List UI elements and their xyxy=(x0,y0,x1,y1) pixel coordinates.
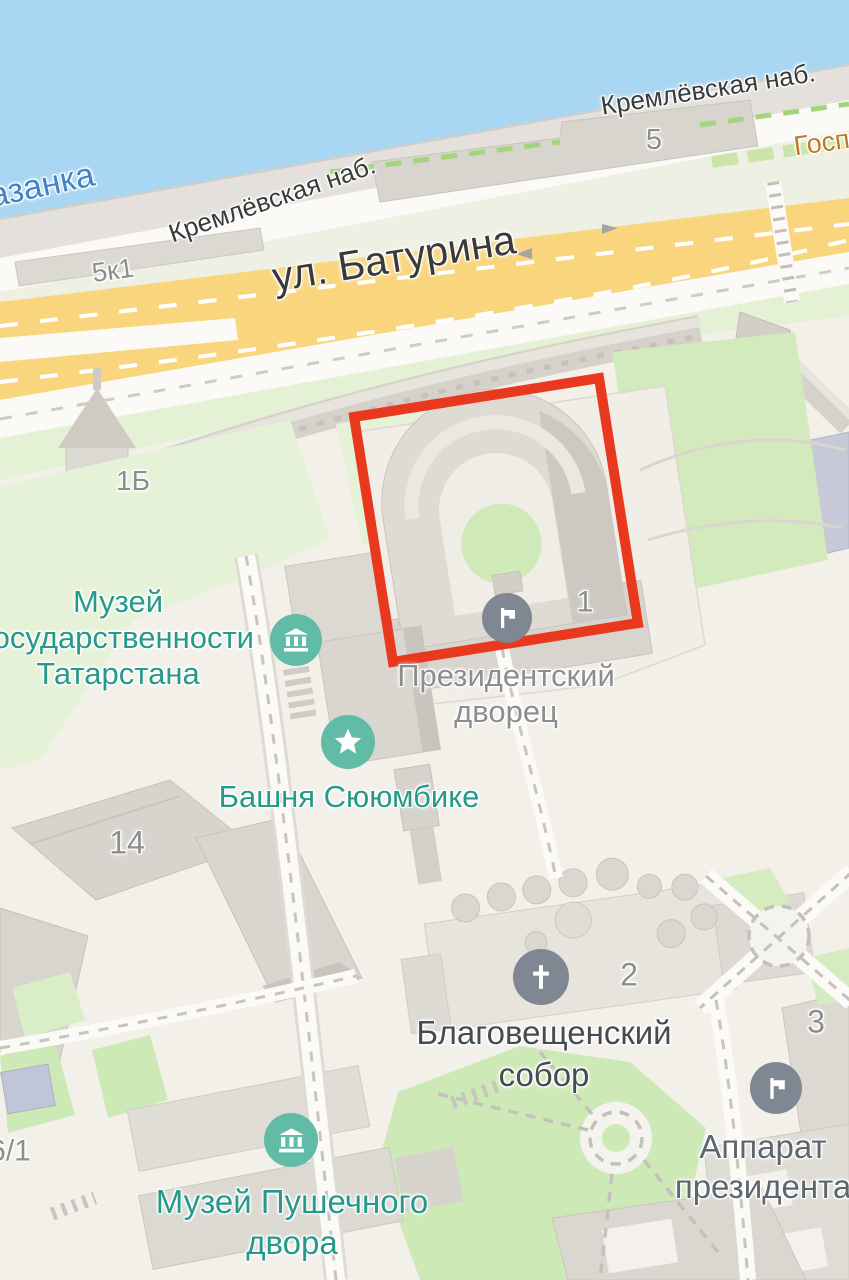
poi-label-line: президента xyxy=(675,1167,849,1207)
flag-icon[interactable] xyxy=(750,1062,802,1114)
museum-glyph xyxy=(275,1124,308,1157)
poi-label-syuyumbike[interactable]: Башня Сююмбике xyxy=(219,779,480,815)
poi-label-museum-gos[interactable]: Музей государственности Татарстана xyxy=(0,584,254,692)
flag-icon[interactable] xyxy=(482,593,532,643)
poi-label-line: собор xyxy=(416,1054,671,1096)
museum-icon[interactable] xyxy=(270,614,322,666)
star-icon[interactable] xyxy=(321,715,375,769)
building-number-6-1: 6/1 xyxy=(0,1135,31,1170)
poi-label-line: Музей Пушечного xyxy=(156,1181,428,1222)
poi-label-apparatus[interactable]: Аппарат президента xyxy=(675,1127,849,1208)
gate-tower-spire xyxy=(93,368,101,390)
poi-label-cathedral[interactable]: Благовещенский собор xyxy=(416,1012,671,1096)
roundabout-center xyxy=(602,1124,630,1152)
building-number-2: 2 xyxy=(620,956,638,993)
cross-icon[interactable] xyxy=(513,949,569,1005)
poi-label-line: дворец xyxy=(397,694,615,730)
poi-label-line: Аппарат xyxy=(675,1127,849,1167)
map-viewport[interactable]: азанка Кремлёвская наб. Кремлёвская наб.… xyxy=(0,0,849,1280)
poi-label-line: Благовещенский xyxy=(416,1012,671,1054)
building-number-14: 14 xyxy=(109,824,145,861)
star-glyph xyxy=(331,725,365,759)
museum-icon[interactable] xyxy=(264,1113,318,1167)
building-number-1: 1 xyxy=(577,586,594,621)
cross-glyph xyxy=(524,960,558,994)
building-number-1b: 1Б xyxy=(116,465,150,497)
building-number-5k1: 5к1 xyxy=(90,253,136,290)
poi-label-line: государственности xyxy=(0,620,254,656)
building-number-5: 5 xyxy=(646,124,662,158)
flag-glyph xyxy=(761,1073,792,1104)
building-blue xyxy=(1,1064,56,1114)
building-number-3: 3 xyxy=(807,1003,825,1040)
poi-label-line: двора xyxy=(156,1222,428,1263)
poi-label-line: Татарстана xyxy=(0,656,254,692)
flag-glyph xyxy=(492,603,522,633)
poi-label-cannon-museum[interactable]: Музей Пушечного двора xyxy=(156,1181,428,1264)
poi-label-palace[interactable]: Президентский дворец xyxy=(397,658,615,730)
poi-label-line: Музей xyxy=(0,584,254,620)
poi-label-line: Президентский xyxy=(397,658,615,694)
museum-glyph xyxy=(280,624,312,656)
